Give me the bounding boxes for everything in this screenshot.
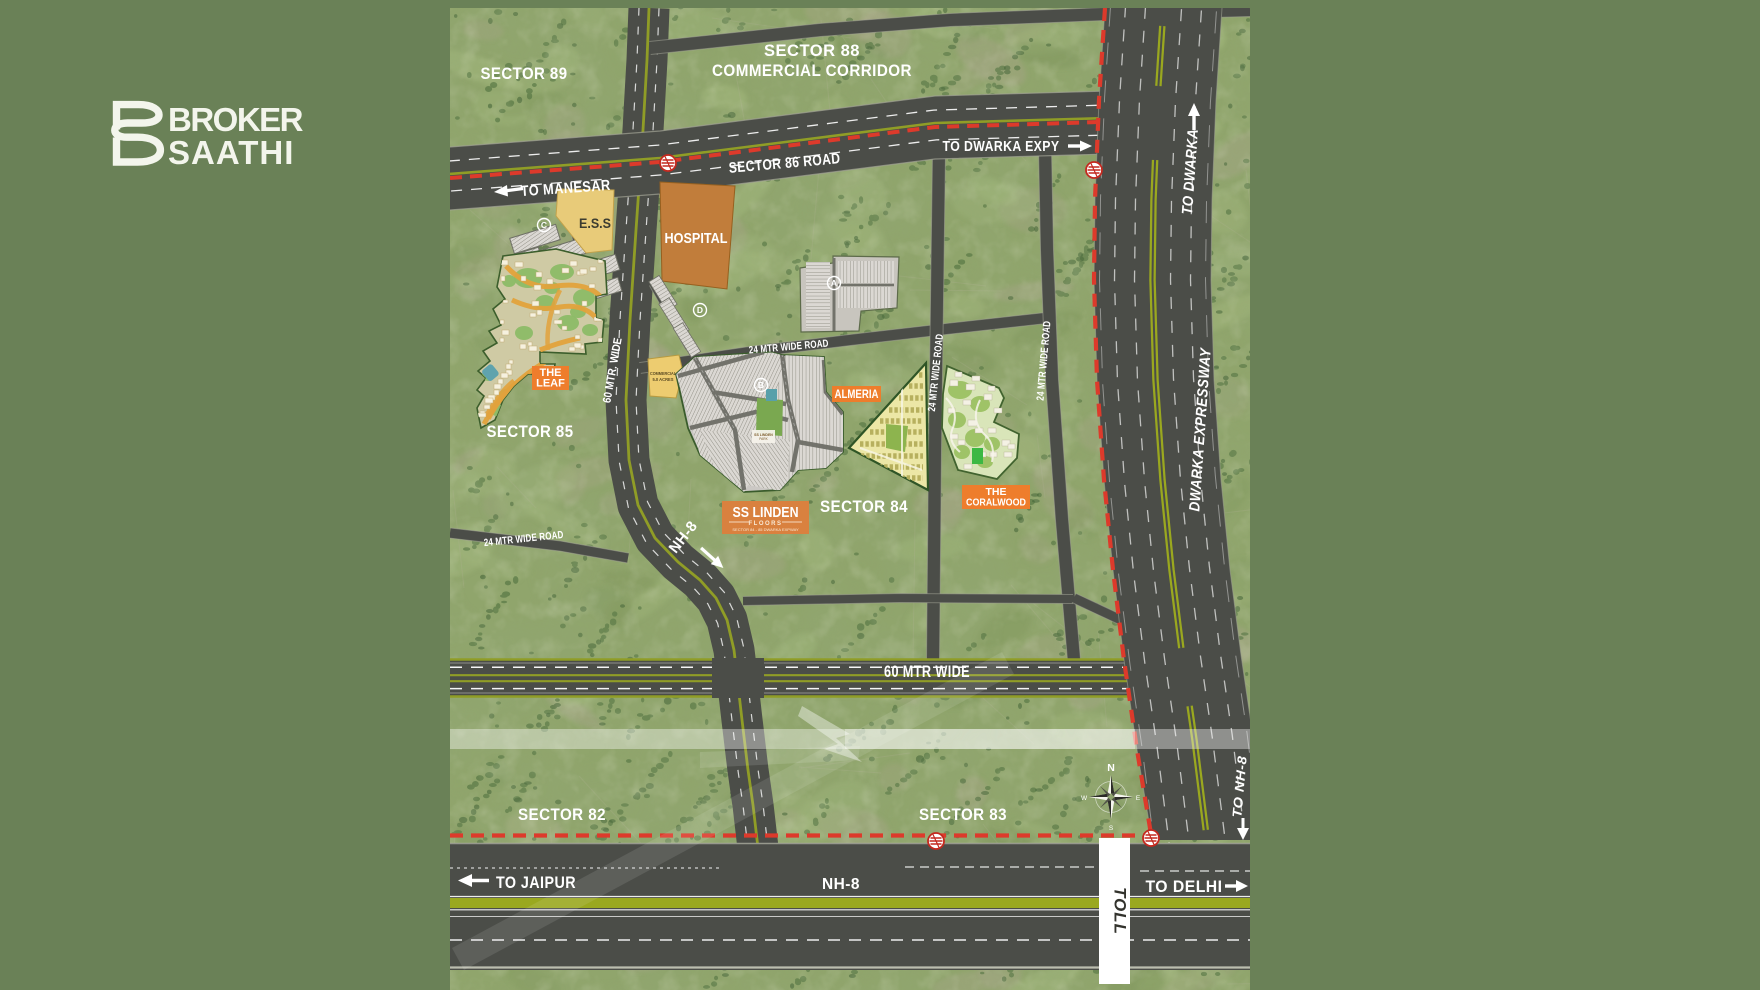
svg-text:C: C (541, 220, 547, 230)
svg-text:A: A (831, 278, 837, 288)
svg-text:SECTOR 82: SECTOR 82 (518, 806, 606, 824)
svg-text:PARK: PARK (759, 437, 768, 441)
svg-text:W: W (1081, 795, 1088, 802)
svg-text:SECTOR 88: SECTOR 88 (764, 41, 860, 60)
svg-text:E: E (1136, 795, 1141, 802)
svg-text:BROKER: BROKER (168, 101, 304, 138)
svg-text:TO JAIPUR: TO JAIPUR (496, 874, 576, 892)
svg-text:HOSPITAL: HOSPITAL (665, 230, 728, 247)
svg-text:TO DELHI: TO DELHI (1146, 878, 1223, 896)
svg-text:E.S.S: E.S.S (579, 216, 611, 231)
svg-text:COMMERCIAL: COMMERCIAL (650, 371, 676, 376)
svg-text:5.0 ACRES: 5.0 ACRES (653, 377, 674, 382)
svg-text:SECTOR 84: SECTOR 84 (820, 497, 908, 516)
svg-text:COMMERCIAL CORRIDOR: COMMERCIAL CORRIDOR (712, 61, 912, 80)
svg-text:60 MTR WIDE: 60 MTR WIDE (884, 663, 970, 681)
svg-text:B: B (758, 380, 764, 390)
svg-text:N: N (1107, 762, 1115, 774)
svg-text:SECTOR 83: SECTOR 83 (919, 806, 1007, 824)
svg-text:NH-8: NH-8 (822, 876, 860, 893)
svg-text:S: S (1109, 825, 1114, 832)
svg-text:SS LINDEN: SS LINDEN (733, 505, 799, 521)
svg-text:TOLL: TOLL (1111, 887, 1130, 935)
svg-text:D: D (697, 305, 703, 315)
svg-text:SAATHI: SAATHI (168, 134, 294, 171)
svg-text:ALMERIA: ALMERIA (835, 389, 879, 401)
svg-text:TO DWARKA EXPY: TO DWARKA EXPY (943, 138, 1060, 155)
svg-text:LEAF: LEAF (536, 377, 565, 389)
svg-text:SECTOR 85: SECTOR 85 (487, 423, 574, 441)
svg-text:SECTOR 89: SECTOR 89 (481, 65, 568, 83)
svg-text:SECTOR 84 - 85 DWARKA EXPWAY: SECTOR 84 - 85 DWARKA EXPWAY (732, 527, 799, 532)
svg-text:CORALWOOD: CORALWOOD (966, 496, 1026, 508)
